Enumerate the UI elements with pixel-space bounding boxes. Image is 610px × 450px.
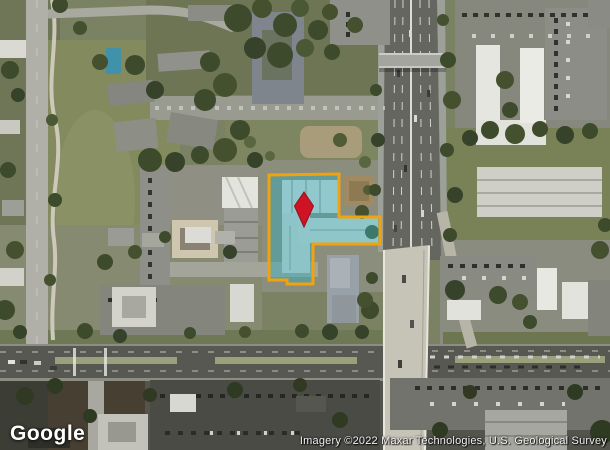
google-logo[interactable]: Google	[10, 422, 85, 446]
attribution-text: Imagery ©2022 Maxar Technologies, U.S. G…	[300, 435, 607, 447]
map-canvas[interactable]: Google Imagery ©2022 Maxar Technologies,…	[0, 0, 610, 450]
satellite-imagery[interactable]	[0, 0, 610, 450]
arterial-road	[0, 344, 610, 381]
